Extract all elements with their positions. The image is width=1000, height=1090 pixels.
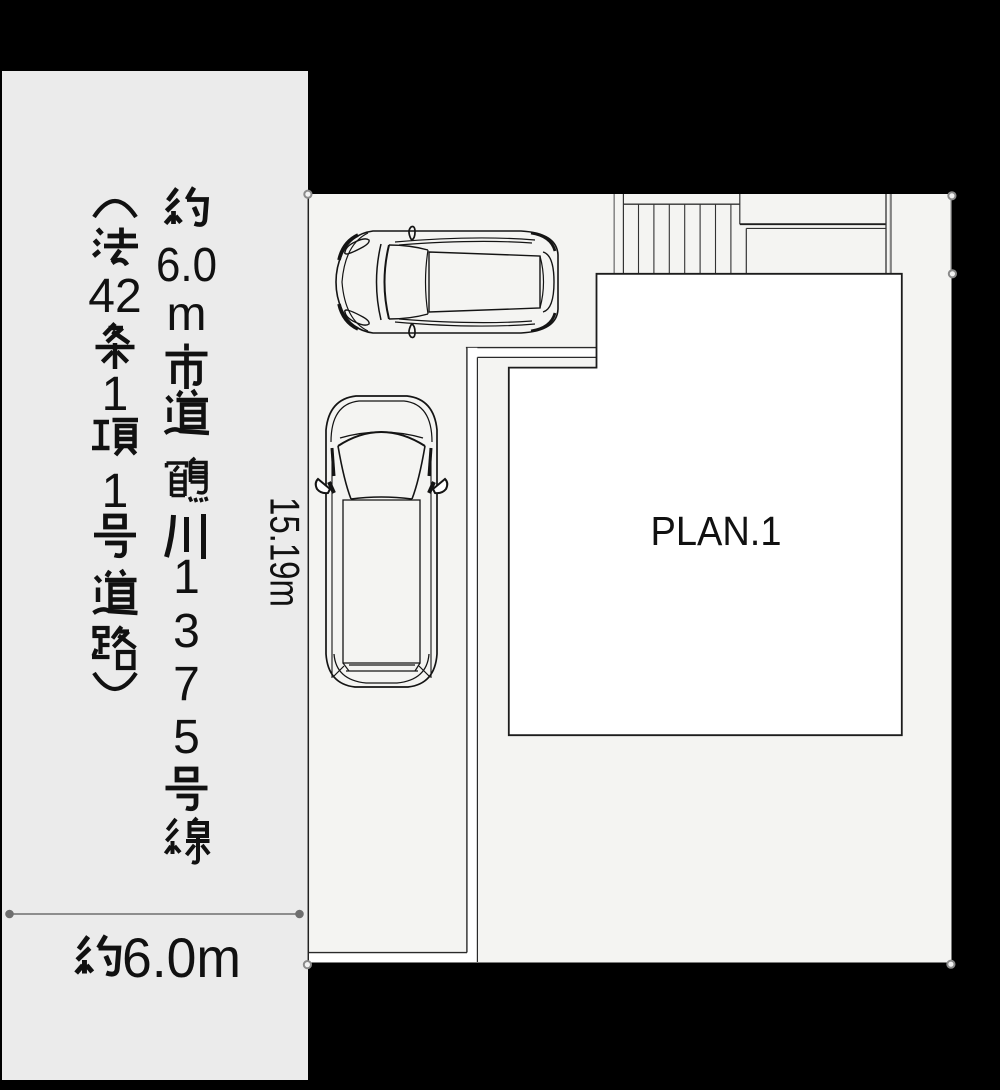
svg-text:6.0m: 6.0m [122, 926, 241, 989]
svg-text:5: 5 [173, 711, 200, 764]
svg-text:1: 1 [102, 465, 129, 518]
svg-text:1: 1 [173, 551, 200, 604]
svg-text:42: 42 [88, 270, 141, 323]
svg-text:6.0: 6.0 [156, 239, 217, 292]
svg-text:PLAN.1: PLAN.1 [651, 508, 782, 554]
svg-text:7: 7 [173, 658, 200, 711]
svg-text:3: 3 [173, 605, 200, 658]
svg-text:m: m [167, 288, 207, 341]
svg-text:1: 1 [102, 368, 129, 421]
svg-text:15.19m: 15.19m [262, 497, 309, 607]
